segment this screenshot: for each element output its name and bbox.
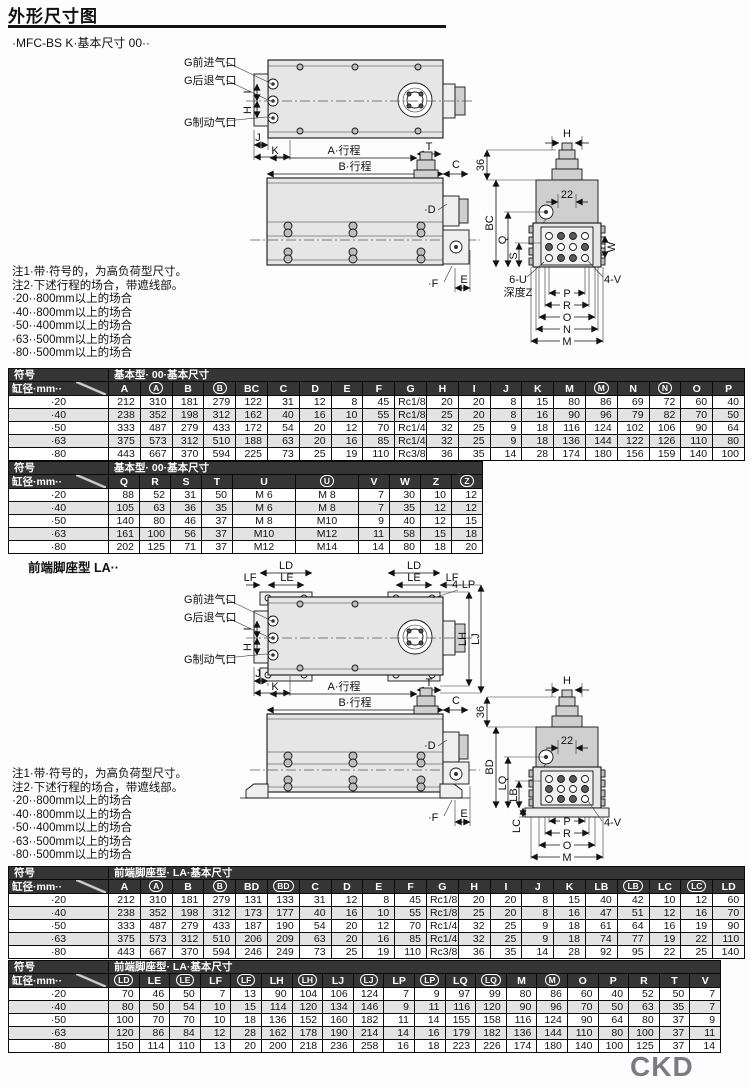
col-header: LD — [713, 880, 745, 894]
table-cell: 77 — [617, 933, 649, 946]
table-cell: 97 — [445, 988, 476, 1001]
dim-b-stroke: B·行程 — [339, 696, 372, 709]
table-cell: 70 — [109, 988, 140, 1001]
table-cell: 18 — [421, 541, 452, 554]
note-bullet: ·20··800mm以上的场合 — [12, 293, 187, 307]
table-cell: 54 — [267, 422, 299, 435]
col-header: N — [617, 382, 649, 396]
table-cell: M 6 — [233, 502, 296, 515]
col-header: Z — [452, 475, 483, 489]
dim-r: R — [563, 300, 571, 312]
dim-f: ·F — [428, 812, 439, 824]
table-cell: 136 — [554, 435, 586, 448]
table-cell: 110 — [713, 933, 745, 946]
table-cell: 10 — [363, 907, 395, 920]
table-cell: 46 — [171, 515, 202, 528]
table-cell: 35 — [458, 448, 490, 461]
col-header: T — [659, 974, 690, 988]
dim-port-i: I — [242, 627, 254, 630]
table-cell: 69 — [617, 396, 649, 409]
table-cell: 573 — [140, 435, 172, 448]
table-row: ·801501141101320200218236258161822322617… — [9, 1040, 721, 1053]
table-cell: 15 — [554, 894, 586, 907]
table-cell: 312 — [172, 933, 204, 946]
bore-label: ·50 — [9, 422, 109, 435]
table-cell: 45 — [395, 894, 427, 907]
table-cell: 14 — [359, 541, 390, 554]
bore-label: ·50 — [9, 920, 109, 933]
basic-end-view: H 36 22 BC Q S W 6-U 深度Z 4-V — [475, 128, 622, 348]
col-header: LF — [231, 974, 262, 988]
table-columns-row: 缸径·mm··QRSTUUVWZZ — [9, 475, 483, 489]
table-cell: 209 — [267, 933, 299, 946]
col-header: M — [554, 382, 586, 396]
dim-e: E — [460, 808, 467, 820]
dim-lf-left: LF — [244, 572, 257, 584]
table-row: ·5033348727943318719054201270Rc1/4322591… — [9, 920, 745, 933]
table-columns-row: 缸径·mm··AABBBCCDEFGHIJKMMNNOP — [9, 382, 745, 396]
table-cell: 140 — [109, 515, 140, 528]
table-cell: 40 — [585, 894, 617, 907]
bore-header: 缸径·mm·· — [9, 475, 109, 489]
table-cell: 51 — [617, 907, 649, 920]
table-cell: 47 — [585, 907, 617, 920]
table-cell: 32 — [426, 422, 458, 435]
table-cell: 46 — [139, 988, 170, 1001]
table-cell: 90 — [554, 409, 586, 422]
port-label-advance: G前进气口 — [184, 592, 237, 606]
table-cell: 32 — [458, 933, 490, 946]
table-cell: 8 — [363, 894, 395, 907]
table-cell: 246 — [236, 946, 268, 959]
table-cell: 10 — [649, 894, 681, 907]
port-label-brake: G制动气口 — [184, 115, 237, 129]
table-row: ·80443667370594225732519110Rc3/836351428… — [9, 448, 745, 461]
col-header: J — [522, 880, 554, 894]
table-cell: 510 — [204, 435, 236, 448]
table-cell: 16 — [649, 920, 681, 933]
table-row: ·207046507139010410612479979980866040525… — [9, 988, 721, 1001]
mounting-flange — [525, 808, 609, 817]
table-cell: 136 — [506, 1027, 537, 1040]
table-cell: 42 — [617, 894, 649, 907]
dim-p: P — [563, 816, 570, 828]
table-cell: 202 — [109, 541, 140, 554]
table-cell: 7 — [200, 988, 231, 1001]
table-cell: 20 — [452, 541, 483, 554]
bore-label: ·20 — [9, 988, 109, 1001]
table-cell: 25 — [681, 946, 713, 959]
table-cell: 190 — [267, 920, 299, 933]
col-header: LB — [617, 880, 649, 894]
dim-4v: 4-V — [604, 274, 622, 286]
note-bullet: ·80··500mm以上的场合 — [12, 347, 187, 361]
table-cell: 25 — [458, 907, 490, 920]
table-cell: 20 — [458, 894, 490, 907]
table-cell: 312 — [204, 409, 236, 422]
col-header: D — [331, 880, 363, 894]
bore-label: ·80 — [9, 448, 109, 461]
dim-a-stroke: A·行程 — [328, 680, 361, 693]
table-cell: M 8 — [296, 489, 359, 502]
foot-end-view: H 36 22 BD LQ LB LC 4-V P — [475, 675, 622, 864]
dim-c: C — [452, 695, 460, 707]
table-cell: 102 — [617, 422, 649, 435]
bore-label: ·20 — [9, 396, 109, 409]
table-cell: 14 — [522, 946, 554, 959]
table-row: ·2088523150M 6M 87301012 — [9, 489, 483, 502]
col-header: D — [299, 382, 331, 396]
table-columns-row: 缸径·mm··AABBBDBDCDEFGHIJKLBLBLCLCLD — [9, 880, 745, 894]
dim-4v: 4-V — [604, 817, 622, 829]
table-cell: 238 — [109, 409, 141, 422]
table-cell: 16 — [522, 409, 554, 422]
table-cell: 9 — [490, 422, 522, 435]
table-cell: 104 — [292, 988, 323, 1001]
table-cell: 12 — [649, 907, 681, 920]
table-cell: 9 — [359, 515, 390, 528]
table-cell: 63 — [299, 933, 331, 946]
col-header: F — [395, 880, 427, 894]
col-header: H — [426, 382, 458, 396]
table-cell: 120 — [109, 1027, 140, 1040]
table-cell: 36 — [171, 502, 202, 515]
table-cell: 9 — [414, 988, 445, 1001]
dim-port-h: H — [242, 106, 254, 114]
col-header: P — [598, 974, 629, 988]
table-cell: 179 — [445, 1027, 476, 1040]
table-cell: 61 — [585, 920, 617, 933]
col-header: O — [681, 382, 713, 396]
table-cell: 120 — [476, 1001, 507, 1014]
table-cell: 333 — [109, 920, 141, 933]
table-cell: 8 — [522, 907, 554, 920]
col-header: A — [109, 880, 141, 894]
table-cell: 90 — [713, 920, 745, 933]
table-cell: 25 — [490, 920, 522, 933]
table-cell: 7 — [690, 1001, 721, 1014]
table-cell: 64 — [713, 422, 745, 435]
table-cell: 70 — [681, 409, 713, 422]
dim-e: E — [460, 274, 467, 286]
table-cell: 14 — [384, 1027, 415, 1040]
bore-label: ·40 — [9, 1001, 109, 1014]
table-header-row: 符号前端脚座型· LA·基本尺寸 — [9, 961, 721, 974]
table-cell: 352 — [140, 409, 172, 422]
left-foot — [246, 784, 268, 798]
table-cell: 85 — [363, 435, 395, 448]
table-cell: 8 — [522, 894, 554, 907]
table-cell: 110 — [363, 448, 395, 461]
table-cell: 433 — [204, 422, 236, 435]
col-header: U — [233, 475, 296, 489]
table-cell: 30 — [390, 489, 421, 502]
table-cell: 667 — [140, 448, 172, 461]
table-cell: 106 — [323, 988, 354, 1001]
table-cell: 258 — [353, 1040, 384, 1053]
col-header: B — [204, 382, 236, 396]
table-cell: 155 — [445, 1014, 476, 1027]
bore-label: ·80 — [9, 541, 109, 554]
table-title: 基本型· 00·基本尺寸 — [109, 462, 483, 475]
col-header: W — [390, 475, 421, 489]
dim-p: P — [563, 288, 570, 300]
table-cell: 131 — [236, 894, 268, 907]
dim-ev-h: H — [563, 128, 571, 140]
table-cell: 110 — [567, 1027, 598, 1040]
table-cell: M10 — [296, 515, 359, 528]
table-cell: 177 — [267, 907, 299, 920]
dim-b-stroke: B·行程 — [339, 160, 372, 173]
dim-k: K — [271, 145, 279, 157]
note-line: 注2·下述行程的场合，带遮线部。 — [12, 280, 187, 294]
table-cell: 182 — [353, 1014, 384, 1027]
table-cell: M12 — [233, 541, 296, 554]
table-cell: 312 — [204, 907, 236, 920]
table-cell: 160 — [323, 1014, 354, 1027]
table-cell: 136 — [261, 1014, 292, 1027]
table-cell: 172 — [236, 422, 268, 435]
bore-label: ·40 — [9, 907, 109, 920]
table-cell: 125 — [140, 541, 171, 554]
table-cell: 25 — [490, 933, 522, 946]
table-cell: 190 — [323, 1027, 354, 1040]
table-cell: 95 — [617, 946, 649, 959]
table-cell: 15 — [452, 515, 483, 528]
col-header: U — [296, 475, 359, 489]
table-cell: 20 — [331, 933, 363, 946]
table-cell: 40 — [713, 396, 745, 409]
table-cell: 100 — [713, 448, 745, 461]
table-cell: 212 — [109, 894, 141, 907]
dim-w: W — [606, 241, 618, 252]
table-cell: 510 — [204, 933, 236, 946]
col-header: LH — [292, 974, 323, 988]
table-cell: Rc1/8 — [426, 907, 458, 920]
table-cell: 40 — [267, 409, 299, 422]
dim-22: 22 — [561, 189, 573, 201]
table-cell: 487 — [140, 920, 172, 933]
table-header-row: 符号前端脚座型· LA·基本尺寸 — [9, 867, 745, 880]
col-header: LC — [649, 880, 681, 894]
port-label-brake: G制动气口 — [184, 652, 237, 666]
col-header: LE — [170, 974, 201, 988]
table-cell: 63 — [267, 435, 299, 448]
table-row: ·6337557331251020620963201685Rc1/4322591… — [9, 933, 745, 946]
table-cell: 12 — [200, 1027, 231, 1040]
bore-label: ·80 — [9, 946, 109, 959]
bore-header: 缸径·mm·· — [9, 974, 109, 988]
foot-dim-table-2: 符号前端脚座型· LA·基本尺寸缸径·mm··LDLELELFLFLHLHLJL… — [8, 960, 721, 1053]
dim-port-h: H — [242, 643, 254, 651]
table-cell: 35 — [490, 946, 522, 959]
dim-bc: BC — [484, 215, 496, 230]
table-cell: 16 — [331, 907, 363, 920]
table-cell: 10 — [200, 1001, 231, 1014]
symbol-header: 符号 — [9, 961, 109, 974]
table-cell: 140 — [713, 946, 745, 959]
table-row: ·4023835219831217317740161055Rc1/8252081… — [9, 907, 745, 920]
table-cell: 180 — [585, 448, 617, 461]
table-cell: 7 — [359, 502, 390, 515]
table-cell: 19 — [649, 933, 681, 946]
table-cell: 20 — [426, 396, 458, 409]
table-cell: 223 — [445, 1040, 476, 1053]
table-cell: 124 — [585, 422, 617, 435]
table-cell: 106 — [649, 422, 681, 435]
table-cell: 54 — [299, 920, 331, 933]
table-cell: Rc1/4 — [395, 435, 427, 448]
table-cell: 36 — [458, 946, 490, 959]
notes-basic: 注1·带·符号的，为高负荷型尺寸。 注2·下述行程的场合，带遮线部。 ·20··… — [12, 266, 187, 361]
table-cell: 180 — [537, 1040, 568, 1053]
table-cell: 226 — [476, 1040, 507, 1053]
dim-le-right: LE — [407, 572, 420, 584]
table-cell: 125 — [629, 1040, 660, 1053]
table-cell: 63 — [140, 502, 171, 515]
table-cell: M 8 — [233, 515, 296, 528]
table-cell: 96 — [585, 409, 617, 422]
table-cell: 15 — [231, 1001, 262, 1014]
note-line: 注1·带·符号的，为高负荷型尺寸。 — [12, 266, 187, 280]
table-cell: 140 — [567, 1040, 598, 1053]
col-header: P — [713, 382, 745, 396]
table-cell: M 6 — [233, 489, 296, 502]
table-cell: 9 — [490, 435, 522, 448]
note-line: 注1·带·符号的，为高负荷型尺寸。 — [12, 768, 187, 782]
bore-label: ·20 — [9, 894, 109, 907]
table-cell: 86 — [537, 988, 568, 1001]
table-cell: 140 — [681, 448, 713, 461]
table-cell: 114 — [139, 1040, 170, 1053]
table-cell: 122 — [236, 396, 268, 409]
table-row: ·5033348727943317254201270Rc1/4322591811… — [9, 422, 745, 435]
table-row: ·202123101812791223112845Rc1/82020815808… — [9, 396, 745, 409]
col-header: T — [202, 475, 233, 489]
table-cell: 124 — [353, 988, 384, 1001]
col-header: LH — [261, 974, 292, 988]
table-cell: 20 — [299, 422, 331, 435]
table-cell: 70 — [395, 920, 427, 933]
col-header: LD — [109, 974, 140, 988]
bore-label: ·20 — [9, 489, 109, 502]
table-cell: 40 — [390, 515, 421, 528]
table-cell: 37 — [659, 1014, 690, 1027]
table-cell: 105 — [109, 502, 140, 515]
table-cell: 96 — [537, 1001, 568, 1014]
col-header: Q — [109, 475, 140, 489]
table-cell: Rc1/4 — [426, 920, 458, 933]
table-cell: 667 — [140, 946, 172, 959]
table-cell: 433 — [204, 920, 236, 933]
table-cell: 80 — [554, 396, 586, 409]
col-header: K — [554, 880, 586, 894]
dim-d: ·D — [424, 204, 436, 216]
symbol-header: 符号 — [9, 369, 109, 382]
table-cell: 310 — [140, 894, 172, 907]
table-cell: 18 — [231, 1014, 262, 1027]
table-cell: 16 — [384, 1040, 415, 1053]
col-header: Z — [421, 475, 452, 489]
table-cell: 86 — [139, 1027, 170, 1040]
table-cell: 279 — [172, 422, 204, 435]
table-cell: 375 — [109, 933, 141, 946]
table-cell: 70 — [139, 1014, 170, 1027]
col-header: BD — [236, 880, 268, 894]
table-cell: 12 — [331, 894, 363, 907]
table-cell: 18 — [554, 933, 586, 946]
table-cell: 36 — [426, 448, 458, 461]
col-header: LP — [414, 974, 445, 988]
table-row: ·40105633635M 6M 87351212 — [9, 502, 483, 515]
dim-bd: BD — [484, 759, 496, 774]
bore-label: ·40 — [9, 502, 109, 515]
note-bullet: ·63··500mm以上的场合 — [12, 334, 187, 348]
table-cell: M12 — [296, 528, 359, 541]
table-cell: 16 — [363, 933, 395, 946]
table-cell: 8 — [331, 396, 363, 409]
col-header: J — [490, 382, 522, 396]
table-cell: 7 — [690, 988, 721, 1001]
table-cell: 40 — [598, 988, 629, 1001]
table-cell: 50 — [659, 988, 690, 1001]
table-title: 前端脚座型· LA·基本尺寸 — [109, 961, 721, 974]
table-cell: 126 — [649, 435, 681, 448]
table-cell: 52 — [629, 988, 660, 1001]
table-cell: 70 — [567, 1001, 598, 1014]
col-header: E — [331, 382, 363, 396]
table-cell: 15 — [522, 396, 554, 409]
dim-s: S — [508, 252, 520, 259]
table-cell: 72 — [649, 396, 681, 409]
col-header: LP — [384, 974, 415, 988]
dim-port-i: I — [242, 90, 254, 93]
table-cell: 238 — [109, 907, 141, 920]
model-subtitle: ·MFC-BS K·基本尺寸 00·· — [12, 34, 150, 51]
table-cell: 55 — [363, 409, 395, 422]
table-cell: 80 — [390, 541, 421, 554]
table-cell: 218 — [292, 1040, 323, 1053]
port-label-advance: G前进气口 — [184, 55, 237, 69]
table-cell: M10 — [233, 528, 296, 541]
col-header: S — [171, 475, 202, 489]
table-cell: 74 — [585, 933, 617, 946]
drawing-basic-type: G前进气口 G后退气口 G制动气口 I H J K A·行程 B·行程 T C … — [184, 55, 622, 348]
table-columns-row: 缸径·mm··LDLELELFLFLHLHLJLJLPLPLQLQMMOPRTV — [9, 974, 721, 988]
dim-a-stroke: A·行程 — [328, 144, 361, 157]
table-cell: 100 — [140, 528, 171, 541]
col-header: R — [140, 475, 171, 489]
col-header: K — [522, 382, 554, 396]
table-cell: 50 — [713, 409, 745, 422]
table-cell: 146 — [353, 1001, 384, 1014]
dim-6u: 6-U — [509, 274, 527, 286]
table-cell: 279 — [172, 920, 204, 933]
dim-ev-h: H — [563, 675, 571, 687]
table-cell: 198 — [172, 907, 204, 920]
table-cell: 120 — [292, 1001, 323, 1014]
bore-header: 缸径·mm·· — [9, 382, 109, 396]
dim-f: ·F — [428, 278, 439, 290]
table-cell: Rc3/8 — [395, 448, 427, 461]
table-cell: 12 — [363, 920, 395, 933]
table-cell: 206 — [236, 933, 268, 946]
table-cell: 37 — [659, 1027, 690, 1040]
dim-lb: LB — [508, 788, 520, 801]
foot-top-view: LD LD LE LE LF LF 4-LP LH LJ G前进气口 G后退气口… — [184, 560, 482, 696]
table-cell: 16 — [299, 409, 331, 422]
table-cell: 37 — [202, 528, 233, 541]
